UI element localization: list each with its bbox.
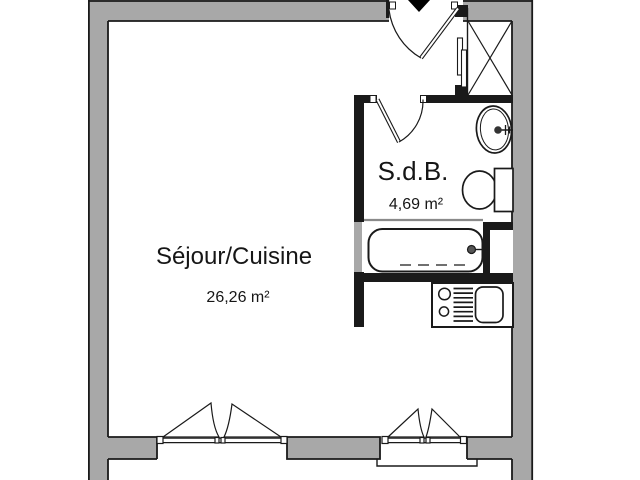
entrance-arrow-icon: [408, 0, 430, 12]
technical-shaft-icon: [483, 222, 513, 282]
entrance-door-swing-icon: [389, 9, 458, 59]
washbasin-icon: [474, 105, 513, 155]
bathtub-icon: [369, 229, 485, 272]
entrance-door: [386, 0, 458, 58]
sliding-door-icon: [458, 38, 467, 87]
room-name-sejour-cuisine: Séjour/Cuisine: [156, 243, 312, 270]
kitchen-unit: [432, 283, 513, 327]
window-right: [382, 409, 467, 444]
bathroom-door: [378, 100, 424, 143]
floor-plan: Séjour/Cuisine 26,26 m² S.d.B. 4,69 m²: [0, 0, 640, 480]
casement-window-icon: [382, 409, 467, 444]
room-area-sejour-cuisine: 26,26 m²: [206, 289, 270, 306]
casement-window-icon: [157, 403, 287, 444]
room-area-sdb: 4,69 m²: [389, 196, 444, 213]
window-left: [157, 403, 287, 444]
toilet-icon: [463, 169, 514, 212]
room-name-sdb: S.d.B.: [378, 156, 449, 186]
closet-cross-icon: [468, 21, 512, 95]
floor-plan-drawing: Séjour/Cuisine 26,26 m² S.d.B. 4,69 m²: [0, 0, 640, 480]
kitchen-sink-icon: [476, 287, 504, 323]
window-ledge-icon: [377, 443, 477, 466]
bathroom-door-swing-icon: [378, 100, 424, 143]
